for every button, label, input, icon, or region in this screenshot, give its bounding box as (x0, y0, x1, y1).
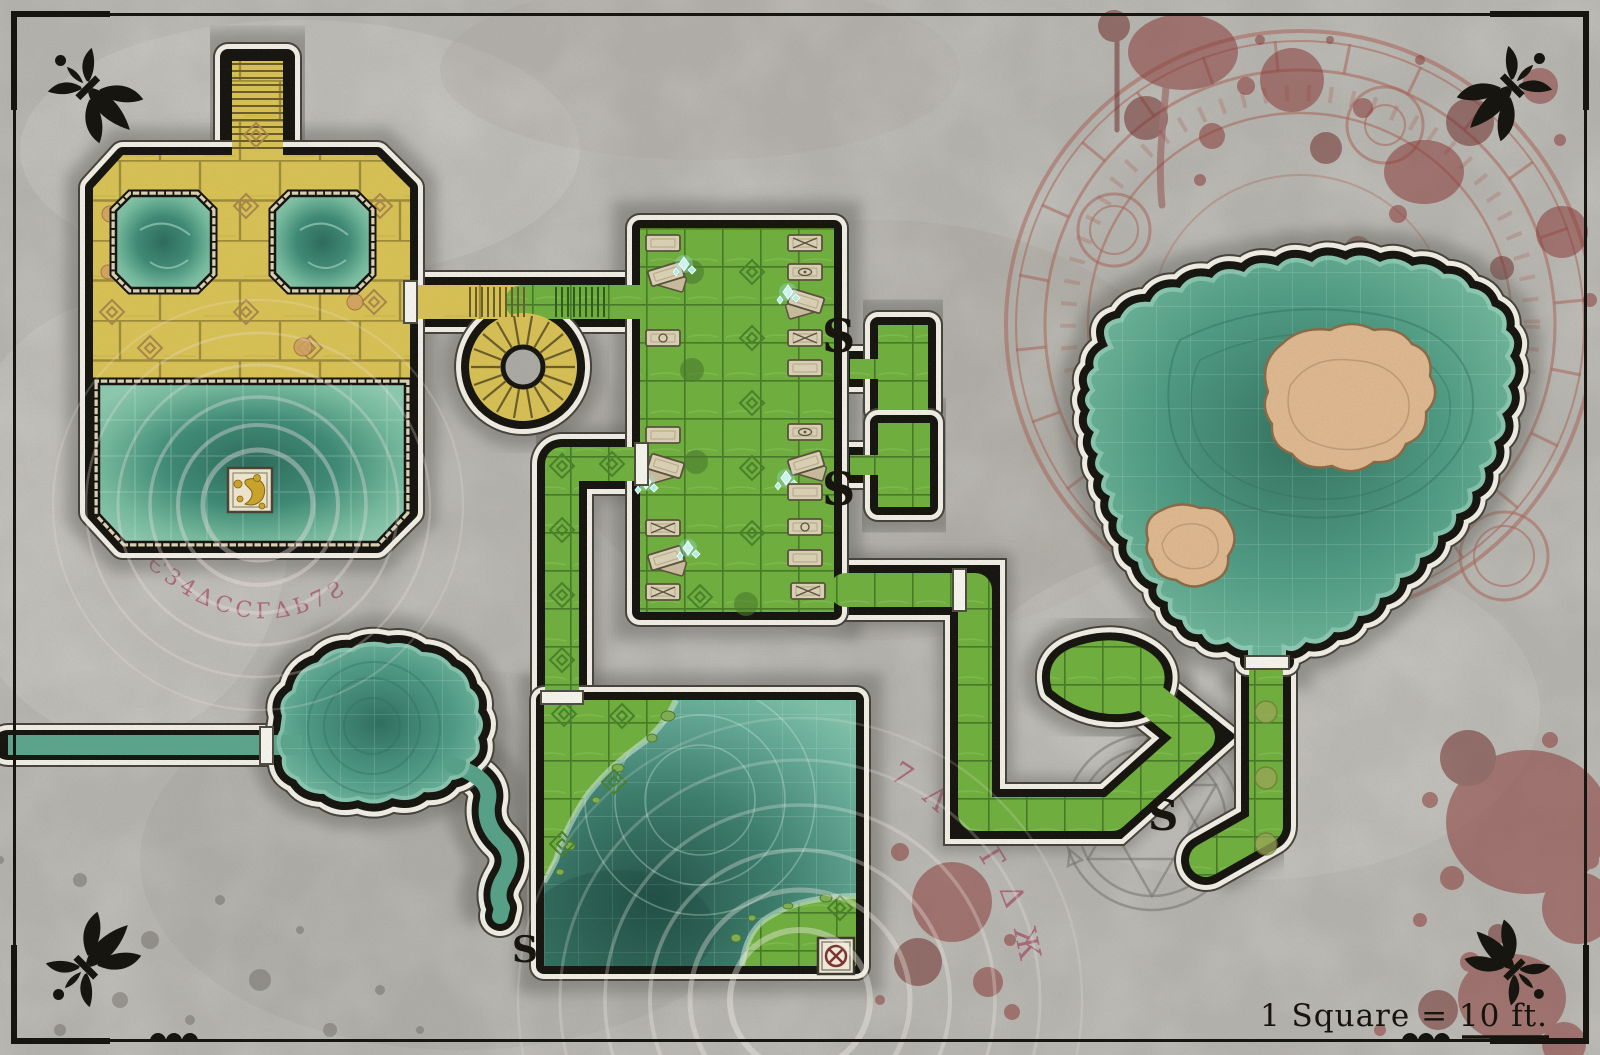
scale-legend-text: 1 Square = 10 ft. (1260, 998, 1548, 1034)
scale-legend: 1 Square = 10 ft. (1260, 998, 1549, 1037)
speckle-texture (0, 0, 1600, 1055)
dungeon-map-canvas: 7ΛЗГΔЖ Є34ΔССГΔЬ7Ƨ (0, 0, 1600, 1055)
